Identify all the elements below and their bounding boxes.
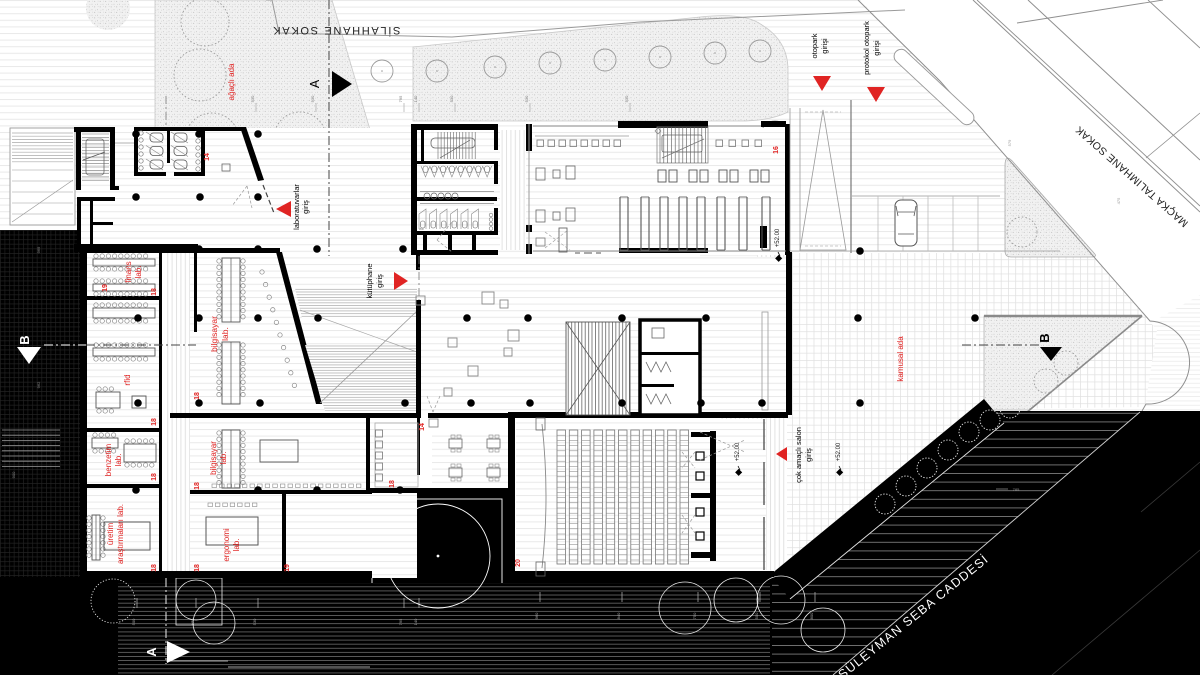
svg-text:otopark: otopark <box>810 33 819 58</box>
svg-text:500: 500 <box>754 612 759 619</box>
svg-text:giriş: giriş <box>804 448 813 462</box>
svg-text:rfid: rfid <box>123 374 132 385</box>
svg-text:girişi: girişi <box>872 40 881 56</box>
svg-text:900: 900 <box>11 471 16 478</box>
svg-text:B: B <box>1037 333 1052 342</box>
svg-text:kamusal ada: kamusal ada <box>896 336 905 382</box>
svg-text:785: 785 <box>1013 487 1020 492</box>
svg-text:840: 840 <box>616 612 621 619</box>
svg-text:+52.00: +52.00 <box>775 228 781 247</box>
svg-text:960: 960 <box>534 612 539 619</box>
svg-text:969: 969 <box>36 246 41 253</box>
svg-text:bilgisayar: bilgisayar <box>209 441 218 475</box>
svg-text:14: 14 <box>204 153 211 161</box>
svg-text:14: 14 <box>419 423 426 431</box>
svg-text:bilgisayar: bilgisayar <box>209 316 219 352</box>
svg-text:530: 530 <box>310 95 315 102</box>
svg-text:giriş: giriş <box>375 274 384 288</box>
svg-text:16: 16 <box>773 146 780 154</box>
svg-text:795: 795 <box>398 618 403 625</box>
svg-text:530: 530 <box>252 618 257 625</box>
svg-text:A: A <box>308 79 322 88</box>
svg-text:19: 19 <box>102 284 109 292</box>
svg-text:kütüphane: kütüphane <box>365 263 374 298</box>
svg-text:A: A <box>144 647 159 657</box>
svg-text:18: 18 <box>389 480 396 488</box>
svg-text:140: 140 <box>413 95 418 102</box>
svg-text:20: 20 <box>515 559 522 567</box>
svg-text:500: 500 <box>131 618 136 625</box>
svg-text:benzetim: benzetim <box>104 443 113 476</box>
svg-text:lab.: lab. <box>220 327 230 341</box>
svg-text:çok amaçlı salon: çok amaçlı salon <box>794 427 803 483</box>
svg-text:18: 18 <box>151 473 158 481</box>
svg-text:+52.00: +52.00 <box>836 442 842 461</box>
svg-text:finans: finans <box>124 261 133 282</box>
svg-text:+52.00: +52.00 <box>735 442 741 461</box>
svg-text:18: 18 <box>194 564 201 572</box>
svg-text:laboratuvarlar: laboratuvarlar <box>292 184 301 230</box>
svg-text:475: 475 <box>1116 197 1121 204</box>
svg-text:araştırmaları lab.: araştırmaları lab. <box>116 504 125 564</box>
svg-text:800: 800 <box>809 612 814 619</box>
svg-text:giriş: giriş <box>301 200 310 214</box>
svg-text:795: 795 <box>398 95 403 102</box>
svg-text:530: 530 <box>449 95 454 102</box>
svg-text:530: 530 <box>624 95 629 102</box>
svg-text:üretim: üretim <box>106 523 115 546</box>
svg-text:lab.: lab. <box>114 454 123 467</box>
svg-text:530: 530 <box>524 95 529 102</box>
svg-text:SİLAHHANE SOKAK: SİLAHHANE SOKAK <box>272 24 401 37</box>
svg-text:579: 579 <box>1007 139 1012 146</box>
svg-text:lab.: lab. <box>134 266 143 279</box>
svg-text:19: 19 <box>284 564 291 572</box>
svg-text:18: 18 <box>194 482 201 490</box>
svg-text:B: B <box>17 335 32 344</box>
svg-text:18: 18 <box>151 288 158 296</box>
svg-text:lab.: lab. <box>219 452 228 465</box>
svg-text:140: 140 <box>413 618 418 625</box>
svg-text:wc: wc <box>419 226 424 231</box>
svg-text:18: 18 <box>151 564 158 572</box>
svg-text:962: 962 <box>36 381 41 388</box>
svg-text:ağaçlı ada: ağaçlı ada <box>227 63 236 100</box>
svg-text:750: 750 <box>692 612 697 619</box>
svg-text:lab.: lab. <box>232 539 241 552</box>
svg-text:ergonomi: ergonomi <box>222 528 231 562</box>
svg-text:18: 18 <box>151 418 158 426</box>
svg-text:girişi: girişi <box>820 38 829 54</box>
svg-text:protokol otopark: protokol otopark <box>862 21 871 75</box>
svg-text:18: 18 <box>194 392 201 400</box>
svg-text:530: 530 <box>250 95 255 102</box>
